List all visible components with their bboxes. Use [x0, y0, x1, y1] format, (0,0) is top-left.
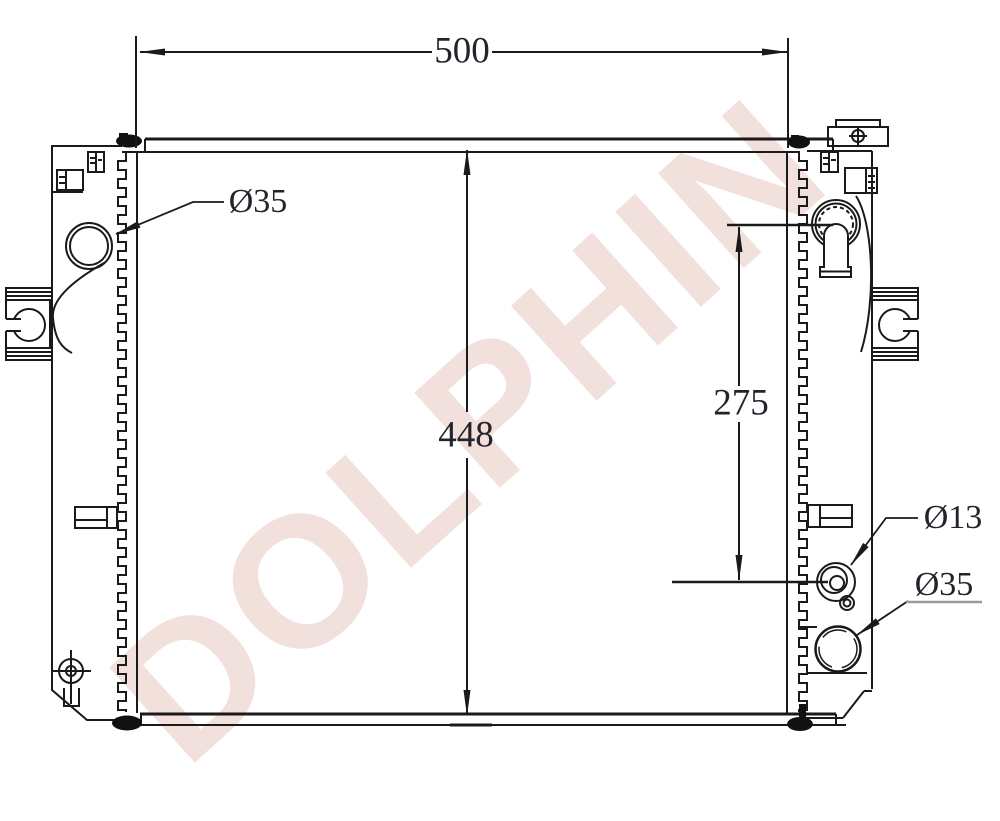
right-tank	[798, 120, 888, 718]
dim-label-overall-width: 500	[434, 30, 490, 73]
drain-petcock	[51, 650, 91, 706]
label-right-drain-diameter: Ø13	[924, 499, 983, 537]
left-inlet-port	[66, 223, 112, 269]
drawing-linework	[0, 0, 1000, 821]
left-mount-bracket	[1, 288, 52, 360]
lower-outlet-port	[816, 627, 861, 672]
lower-drain-port	[817, 563, 855, 610]
filler-neck	[828, 120, 888, 146]
left-tank	[51, 146, 122, 720]
serration-left	[118, 152, 126, 712]
radiator-technical-drawing: DOLPHIN	[0, 0, 1000, 821]
upper-inlet-port	[812, 200, 860, 277]
dim-label-port-spacing: 275	[713, 382, 769, 425]
label-leaders	[116, 202, 982, 635]
right-mount-bracket	[872, 288, 923, 360]
dim-label-overall-height: 448	[438, 414, 494, 457]
serration-right	[799, 152, 807, 712]
mid-side-tabs	[75, 505, 852, 528]
label-right-outlet-diameter: Ø35	[915, 566, 974, 604]
label-left-inlet-diameter: Ø35	[229, 183, 288, 221]
